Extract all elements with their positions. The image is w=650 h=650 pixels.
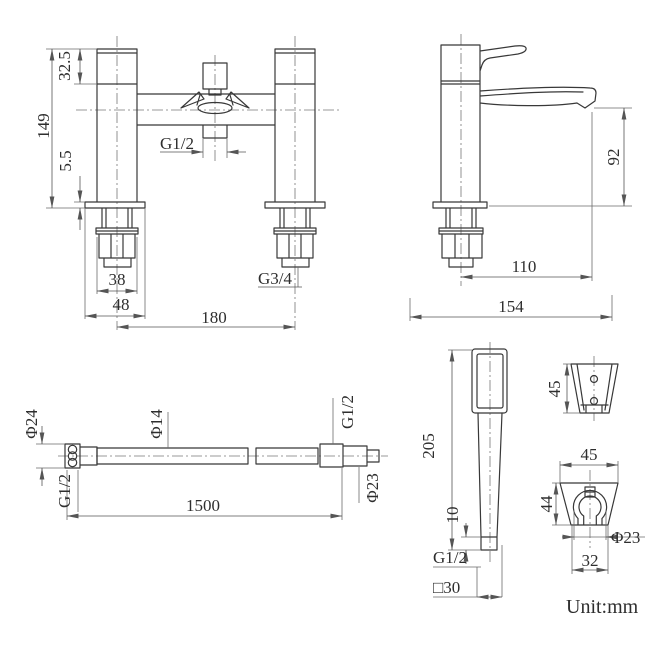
bracket-side-view: 45 xyxy=(545,356,618,421)
dim-label-32-5: 32.5 xyxy=(55,51,74,81)
dim-label-1500: 1500 xyxy=(186,496,220,515)
unit-label: Unit:mm xyxy=(566,596,639,618)
dim-label-sq30: □30 xyxy=(433,578,460,597)
dim-label-38: 38 xyxy=(109,270,126,289)
bracket-side-extension-lines xyxy=(563,364,580,413)
technical-drawing-sheet: 32.5 149 5.5 G1/2 38 48 G3/4 180 92 110 … xyxy=(0,0,650,650)
mixer-side-view: 92 110 154 xyxy=(410,34,632,321)
dim-label-32: 32 xyxy=(582,551,599,570)
mixer-front-view: 32.5 149 5.5 G1/2 38 48 G3/4 180 xyxy=(34,36,340,330)
dim-label-44: 44 xyxy=(537,495,556,513)
hose-view: Φ24 G1/2 Φ14 G1/2 Φ23 1500 xyxy=(22,395,388,520)
mixer-side-extension-lines xyxy=(410,108,632,321)
handset-view: 205 10 G1/2 □30 xyxy=(419,342,507,597)
dim-label-5-5: 5.5 xyxy=(56,150,75,171)
mixer-front-outline xyxy=(85,49,325,267)
dim-label-g12-outlet: G1/2 xyxy=(160,134,194,153)
bracket-side-outline xyxy=(571,364,618,413)
dim-label-180: 180 xyxy=(201,308,227,327)
dim-label-phi23-bracket: Φ23 xyxy=(611,528,640,547)
dim-label-phi23-hose: Φ23 xyxy=(363,473,382,502)
dim-label-110: 110 xyxy=(512,257,537,276)
bracket-front-outline xyxy=(560,483,618,525)
dim-label-149: 149 xyxy=(34,113,53,139)
dim-label-phi24: Φ24 xyxy=(22,409,41,439)
dim-label-154: 154 xyxy=(498,297,524,316)
bracket-front-extension-lines xyxy=(552,461,645,574)
dim-label-phi14: Φ14 xyxy=(147,409,166,439)
dim-label-g12-hose-right: G1/2 xyxy=(338,395,357,429)
dim-label-g12-handset: G1/2 xyxy=(433,548,467,567)
faucet-dimension-drawing: 32.5 149 5.5 G1/2 38 48 G3/4 180 92 110 … xyxy=(0,0,650,650)
dim-label-45-side: 45 xyxy=(545,381,564,398)
dim-label-45-front: 45 xyxy=(581,445,598,464)
dim-label-g12-hose-left: G1/2 xyxy=(55,474,74,508)
dim-label-48: 48 xyxy=(113,295,130,314)
dim-label-205: 205 xyxy=(419,433,438,459)
mixer-side-outline xyxy=(433,45,596,267)
dim-label-92: 92 xyxy=(604,149,623,166)
dim-label-10: 10 xyxy=(443,507,462,524)
bracket-front-view: 45 44 Φ23 32 xyxy=(537,445,645,574)
dim-label-g34-inlet: G3/4 xyxy=(258,269,293,288)
